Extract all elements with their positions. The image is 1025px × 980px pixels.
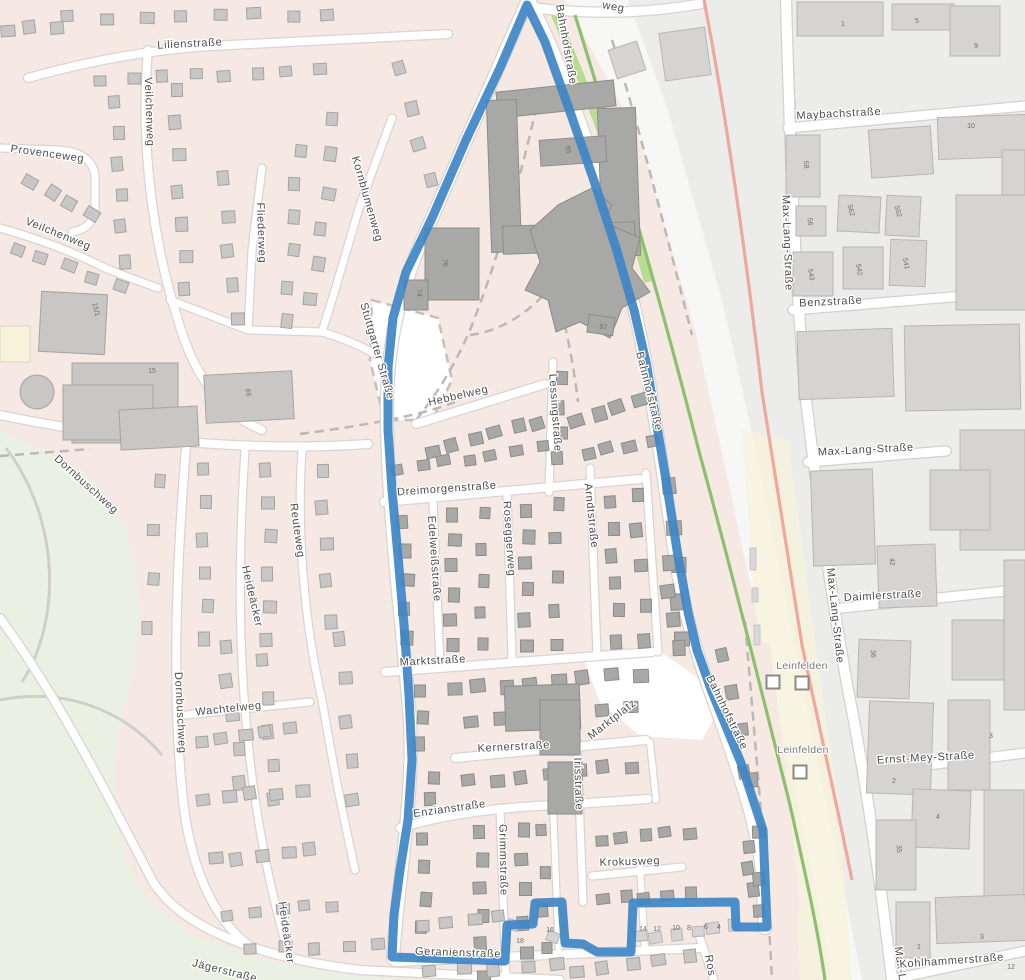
- house-number: 12: [1007, 964, 1015, 971]
- street-label: Fliederweg: [254, 202, 268, 263]
- map-viewport[interactable]: 85767487651515/1159105856562552543542541…: [0, 0, 1025, 980]
- street-label: Irisstraße: [571, 757, 585, 810]
- house-number: 15: [148, 368, 156, 375]
- house-number: 4: [717, 924, 721, 931]
- street-label: Veilchenweg: [142, 77, 156, 147]
- station-label: Leinfelden: [777, 744, 828, 756]
- house-number: 36: [869, 650, 877, 658]
- house-number: 42: [888, 558, 896, 566]
- railway-station-marker: [796, 677, 809, 690]
- house-number: 65: [243, 388, 251, 397]
- railway-station-marker: [794, 766, 807, 779]
- station-label: Leinfelden: [776, 660, 827, 672]
- house-number: 3: [980, 934, 984, 941]
- house-number: 74: [415, 289, 423, 297]
- house-number: 1: [917, 944, 921, 951]
- house-number: 8: [687, 925, 691, 932]
- house-number: 56: [805, 217, 813, 226]
- house-number: 10: [967, 123, 975, 130]
- house-number: 85: [563, 145, 571, 154]
- house-number: 10: [672, 925, 680, 932]
- house-number: 3: [989, 733, 993, 740]
- house-number: 12: [653, 926, 661, 933]
- house-number: 14: [639, 926, 647, 933]
- map-canvas[interactable]: 85767487651515/1159105856562552543542541…: [0, 0, 1025, 980]
- house-number: 6: [704, 924, 708, 931]
- house-number: 18: [516, 938, 524, 945]
- house-number: 76: [441, 259, 449, 267]
- house-number: 58: [801, 160, 809, 169]
- house-number: 35: [895, 845, 903, 853]
- railway-station-marker: [767, 676, 780, 689]
- house-number: 1: [841, 21, 845, 28]
- street-label: Grimmstraße: [496, 824, 509, 896]
- house-number: 9: [974, 43, 978, 50]
- house-number: 5: [915, 18, 919, 25]
- house-number: 4: [936, 814, 940, 821]
- house-number: 87: [599, 323, 608, 331]
- house-number: 16: [546, 927, 554, 934]
- house-number: 2: [892, 778, 896, 785]
- street-label: Krokusweg: [599, 855, 660, 869]
